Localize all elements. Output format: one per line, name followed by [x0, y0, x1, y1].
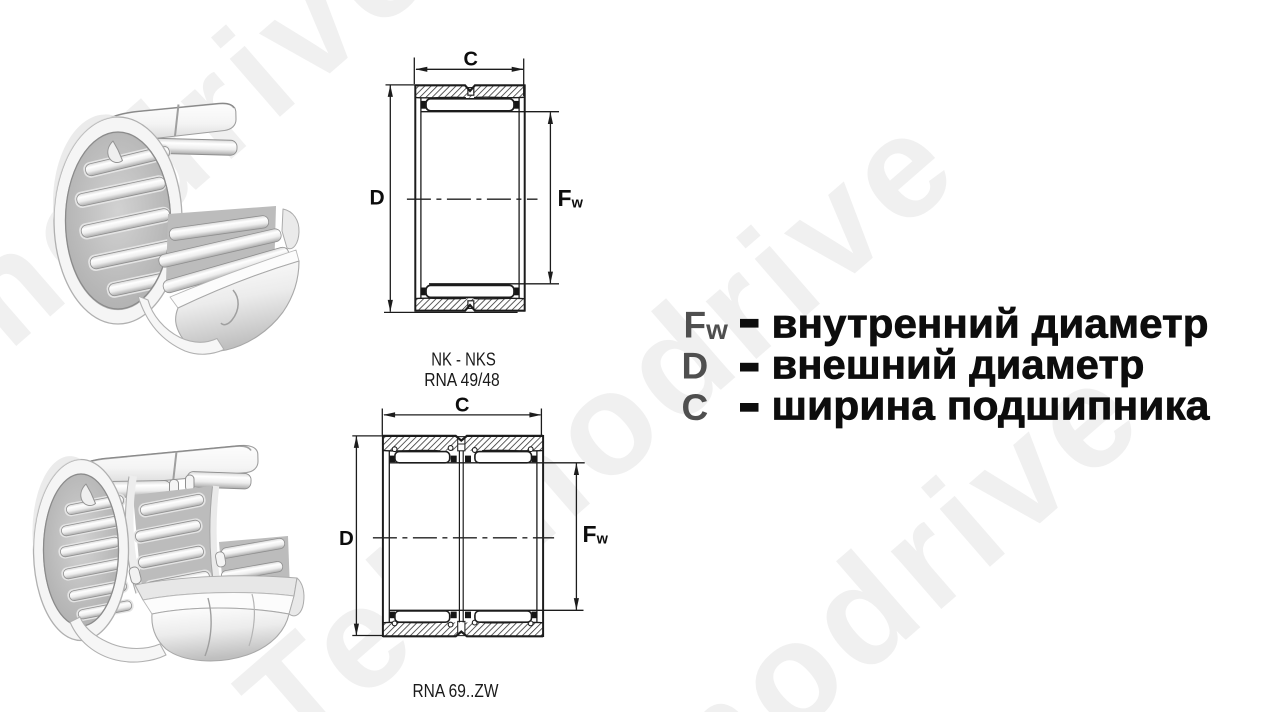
svg-text:C: C [455, 395, 469, 417]
svg-text:RNA 49/48: RNA 49/48 [424, 369, 500, 390]
svg-text:D: D [682, 346, 709, 387]
svg-text:C: C [464, 49, 478, 71]
svg-text:D: D [339, 527, 354, 550]
svg-text:NK - NKS: NK - NKS [431, 348, 496, 369]
svg-text:ширина подшипника: ширина подшипника [772, 383, 1211, 429]
svg-text:D: D [370, 187, 385, 210]
svg-text:внешний диаметр: внешний диаметр [772, 342, 1145, 388]
svg-text:C: C [682, 387, 709, 428]
svg-text:внутренний диаметр: внутренний диаметр [772, 301, 1209, 347]
svg-text:RNA 69..ZW: RNA 69..ZW [413, 680, 499, 701]
